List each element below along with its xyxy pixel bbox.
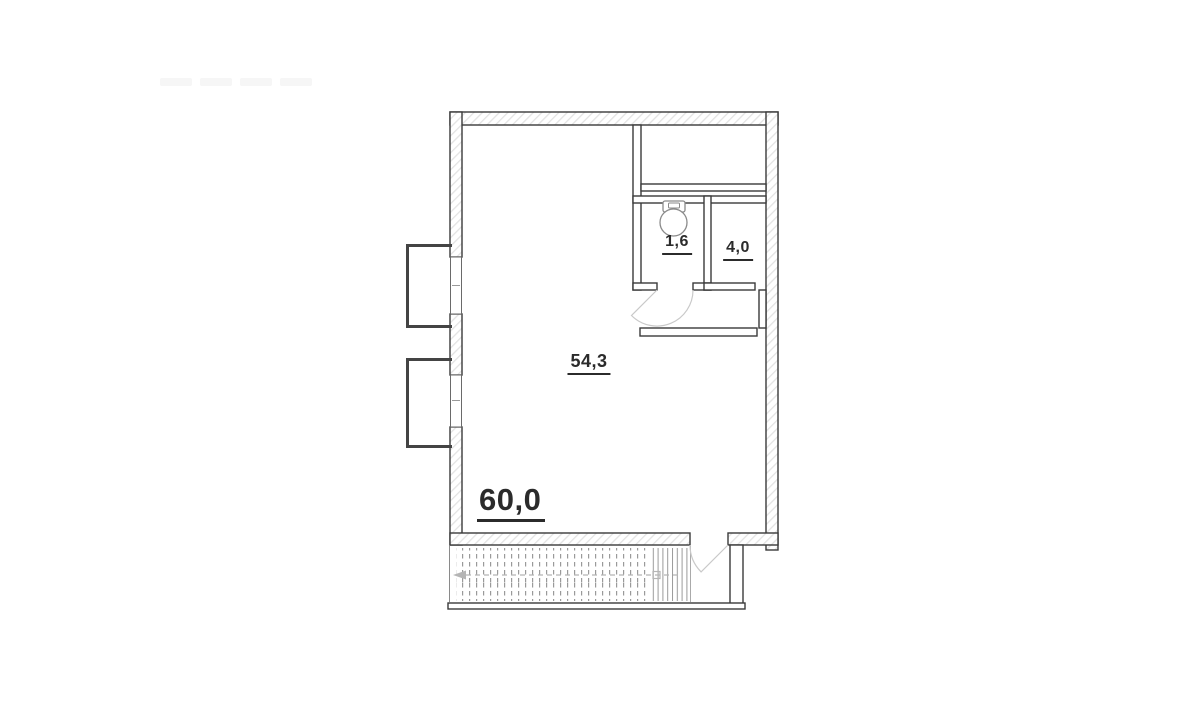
wall-bottom-left — [450, 533, 690, 545]
toilet-tank-lid — [669, 203, 680, 208]
hall-door-leaf — [759, 290, 766, 328]
balcony-lower — [408, 360, 453, 447]
wc-door-arc — [632, 290, 694, 326]
wall-top — [450, 112, 778, 125]
toilet-bowl — [660, 209, 687, 236]
wall-storage-bottom — [641, 184, 766, 191]
entrance-door-arc — [690, 545, 728, 572]
partition-living-wc — [633, 125, 641, 290]
staircase — [450, 546, 691, 602]
total-area-value: 60,0 — [477, 484, 545, 522]
wall-left-middle — [450, 314, 462, 375]
wall-left-upper — [450, 112, 462, 257]
toilet-icon — [660, 201, 687, 236]
hall-area-label: 4,0 — [723, 240, 753, 261]
partition-wc-hall — [704, 196, 711, 290]
wc-area-value: 1,6 — [662, 234, 692, 255]
wall-hall-bottom — [704, 283, 755, 290]
hall-area-value: 4,0 — [723, 240, 753, 261]
wall-landing-right — [730, 545, 743, 605]
balconies — [408, 246, 453, 447]
wall-landing-bottom — [448, 603, 745, 609]
living-room-area-label: 54,3 — [567, 352, 610, 375]
living-room-area-value: 54,3 — [567, 352, 610, 375]
wall-left-lower — [450, 427, 462, 545]
wall-hallway — [640, 328, 757, 336]
floor-plan-page: 60,0 54,3 1,6 4,0 — [0, 0, 1200, 718]
wall-wc-bottom-left-stub — [633, 283, 657, 290]
balcony-upper — [408, 246, 453, 327]
total-area-label: 60,0 — [477, 484, 545, 522]
wall-wc-hall-top — [633, 196, 766, 203]
wc-area-label: 1,6 — [662, 234, 692, 255]
wall-right — [766, 112, 778, 550]
wall-bottom-right-stub — [728, 533, 778, 545]
